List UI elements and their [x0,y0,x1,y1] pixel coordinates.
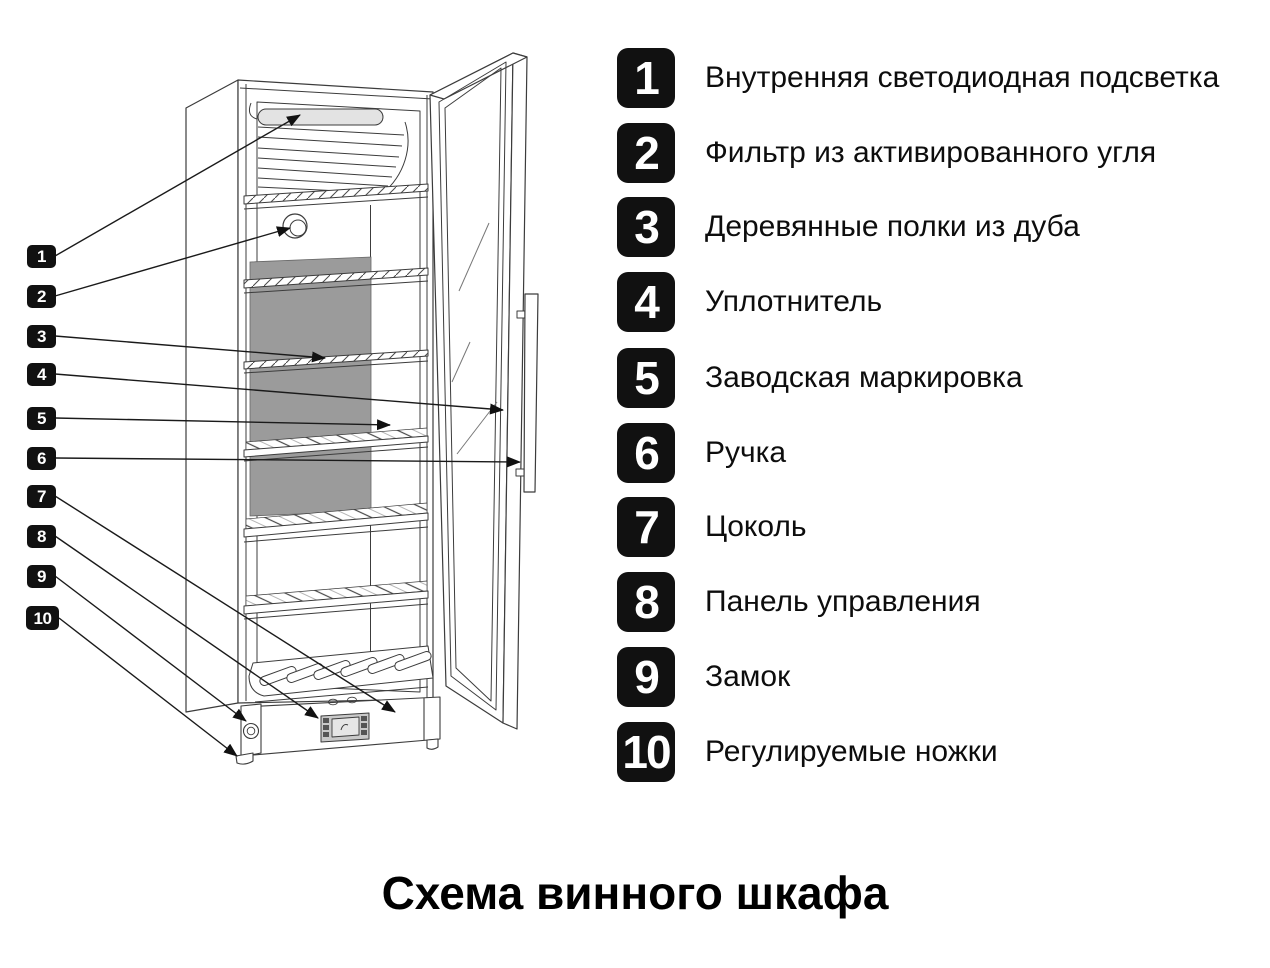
adjustable-foot [236,753,253,764]
legend-item: 9 Замок [617,647,790,707]
callout-badge: 9 [27,565,56,588]
legend-item-label: Замок [705,660,790,694]
legend-number-badge: 5 [617,348,675,408]
legend-item: 8 Панель управления [617,572,981,632]
legend-number-badge: 2 [617,123,675,183]
callout-badge: 3 [27,325,56,348]
plinth [236,697,440,764]
led-light [258,109,383,125]
legend-item-label: Заводская маркировка [705,361,1023,395]
legend-item: 3 Деревянные полки из дуба [617,197,1080,257]
callout-badge: 6 [27,447,56,470]
legend-item: 4 Уплотнитель [617,272,882,332]
legend-number-badge: 9 [617,647,675,707]
legend-number-badge: 4 [617,272,675,332]
legend-item: 7 Цоколь [617,497,807,557]
callout-badge: 1 [27,245,56,268]
legend-item-label: Ручка [705,436,786,470]
callout-badge: 2 [27,285,56,308]
legend-item-label: Регулируемые ножки [705,735,998,769]
back-panel [250,257,371,516]
legend-item: 6 Ручка [617,423,786,483]
callout-badge: 8 [27,525,56,548]
legend-item-label: Внутренняя светодиодная подсветка [705,61,1219,95]
control-panel [321,713,369,742]
legend-number-badge: 3 [617,197,675,257]
legend-item-label: Панель управления [705,585,981,619]
diagram-title: Схема винного шкафа [0,866,1270,920]
wine-cabinet-diagram-page: { "title": "Схема винного шкафа", "legen… [0,0,1270,968]
legend-number-badge: 10 [617,722,675,782]
legend-item: 5 Заводская маркировка [617,348,1023,408]
callout-badge: 4 [27,363,56,386]
legend-item-label: Фильтр из активированного угля [705,136,1156,170]
legend-number-badge: 1 [617,48,675,108]
carbon-filter [283,214,307,238]
legend-item: 10 Регулируемые ножки [617,722,998,782]
legend-item-label: Деревянные полки из дуба [705,210,1080,244]
legend-number-badge: 6 [617,423,675,483]
legend-number-badge: 8 [617,572,675,632]
legend-number-badge: 7 [617,497,675,557]
adjustable-foot [427,739,438,749]
glass-door [430,53,538,729]
legend-item: 2 Фильтр из активированного угля [617,123,1156,183]
legend-item-label: Цоколь [705,510,807,544]
legend-item-label: Уплотнитель [705,285,882,319]
callout-badge: 10 [26,606,59,630]
legend-item: 1 Внутренняя светодиодная подсветка [617,48,1219,108]
callout-badge: 5 [27,407,56,430]
callout-badge: 7 [27,485,56,508]
